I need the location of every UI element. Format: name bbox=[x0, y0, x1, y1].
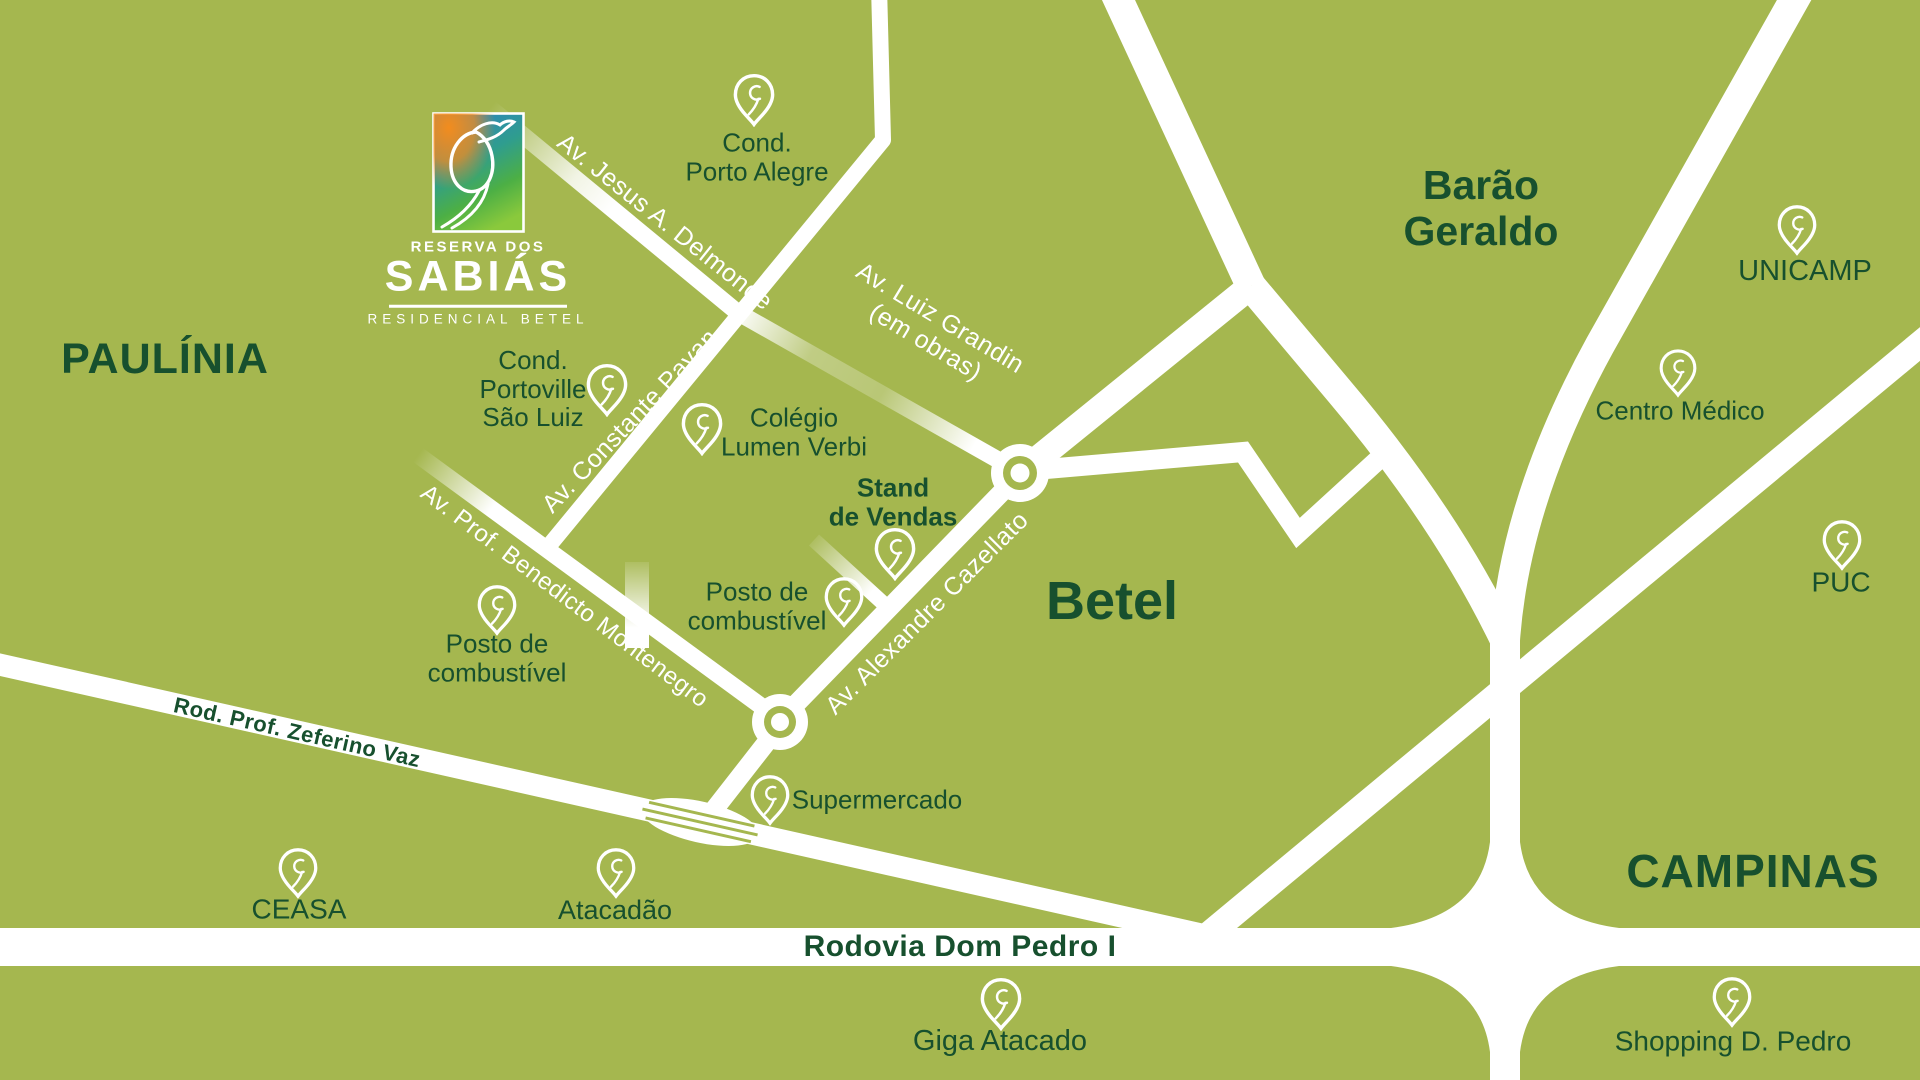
poi-giga-atacado: Giga Atacado bbox=[913, 1026, 1087, 1058]
poi-colegio-lumen-verbi: ColégioLumen Verbi bbox=[721, 403, 867, 460]
interchange-fillet bbox=[1382, 842, 1490, 929]
road-barao-diagonal bbox=[1505, 0, 1802, 640]
region-paulinia: PAULÍNIA bbox=[61, 335, 269, 383]
roundabout-north bbox=[991, 444, 1049, 502]
poi-unicamp: UNICAMP bbox=[1738, 256, 1872, 288]
region-campinas: CAMPINAS bbox=[1626, 846, 1879, 898]
poi-cond-porto-alegre: Cond.Porto Alegre bbox=[685, 128, 828, 185]
interchange-fillet bbox=[1382, 965, 1490, 1052]
region-barao-geraldo: Barão Geraldo bbox=[1404, 163, 1559, 255]
location-pin-icon bbox=[1659, 349, 1697, 398]
poi-atacadao: Atacadão bbox=[558, 896, 672, 926]
interchange-fillet bbox=[1520, 965, 1628, 1052]
road-label-dom-pedro: Rodovia Dom Pedro I bbox=[804, 930, 1117, 964]
location-pin-icon bbox=[874, 527, 916, 581]
poi-ceasa: CEASA bbox=[252, 895, 347, 926]
brand-name-sabias: SABIÁS bbox=[385, 253, 571, 302]
road-fork-to-roundabout bbox=[1040, 286, 1251, 457]
poi-shopping-d-pedro: Shopping D. Pedro bbox=[1615, 1027, 1852, 1058]
road-top-north bbox=[1112, 0, 1251, 286]
interchange-fillet bbox=[1520, 842, 1628, 929]
location-pin-icon bbox=[980, 977, 1022, 1031]
poi-posto-combustivel-central: Posto decombustível bbox=[688, 577, 827, 634]
location-pin-icon bbox=[586, 363, 628, 417]
brand-line-residencial-betel: RESIDENCIAL BETEL bbox=[367, 312, 588, 327]
brand-logo-badge bbox=[432, 112, 525, 233]
location-map: RESERVA DOS SABIÁS RESIDENCIAL BETEL PAU… bbox=[0, 0, 1920, 1080]
poi-stand-de-vendas: Standde Vendas bbox=[829, 473, 958, 530]
poi-puc: PUC bbox=[1811, 568, 1870, 599]
roundabout-south bbox=[752, 694, 808, 750]
location-pin-icon bbox=[1822, 520, 1862, 571]
location-pin-icon bbox=[733, 73, 775, 127]
poi-cond-portoville-sao-luiz: Cond.PortovilleSão Luiz bbox=[480, 346, 587, 432]
location-pin-icon bbox=[824, 577, 864, 628]
poi-posto-combustivel-oeste: Posto decombustível bbox=[428, 629, 567, 686]
location-pin-icon bbox=[1777, 205, 1817, 256]
location-pin-icon bbox=[681, 402, 723, 456]
poi-supermercado: Supermercado bbox=[792, 786, 963, 815]
brand-divider-rule bbox=[389, 305, 567, 308]
highway-lens-interchange bbox=[637, 789, 763, 855]
location-pin-icon bbox=[750, 775, 790, 826]
location-pin-icon bbox=[1712, 977, 1752, 1028]
road-betel-zigzag bbox=[1046, 447, 1392, 533]
region-betel: Betel bbox=[1046, 571, 1178, 631]
poi-centro-medico: Centro Médico bbox=[1595, 397, 1764, 426]
location-pin-icon bbox=[596, 848, 636, 899]
location-pin-icon bbox=[278, 848, 318, 899]
